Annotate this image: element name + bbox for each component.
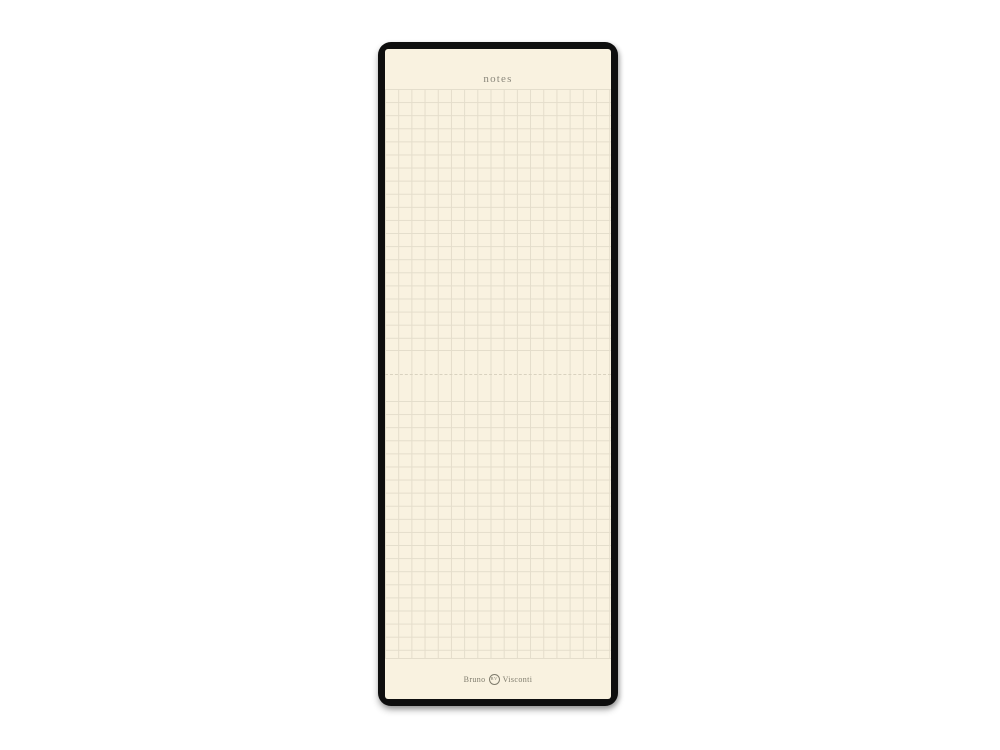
brand-name-left: Bruno — [464, 675, 486, 684]
notepad-header: notes — [385, 49, 611, 89]
brand-emblem-monogram: BV — [491, 677, 498, 682]
grid-top-section — [385, 89, 611, 351]
notes-label: notes — [483, 73, 512, 85]
product-photo-canvas: notes Bruno BV Visconti — [0, 0, 1000, 750]
brand-emblem-icon: BV — [489, 674, 500, 685]
notepad-paper: notes Bruno BV Visconti — [385, 49, 611, 699]
grid-middle-band — [385, 351, 611, 401]
perforation-dash-line — [385, 374, 611, 375]
notepad-footer: Bruno BV Visconti — [385, 659, 611, 699]
grid-bottom-section — [385, 401, 611, 659]
brand-logo: Bruno BV Visconti — [464, 674, 533, 685]
brand-name-right: Visconti — [503, 675, 533, 684]
notepad: notes Bruno BV Visconti — [378, 42, 618, 706]
